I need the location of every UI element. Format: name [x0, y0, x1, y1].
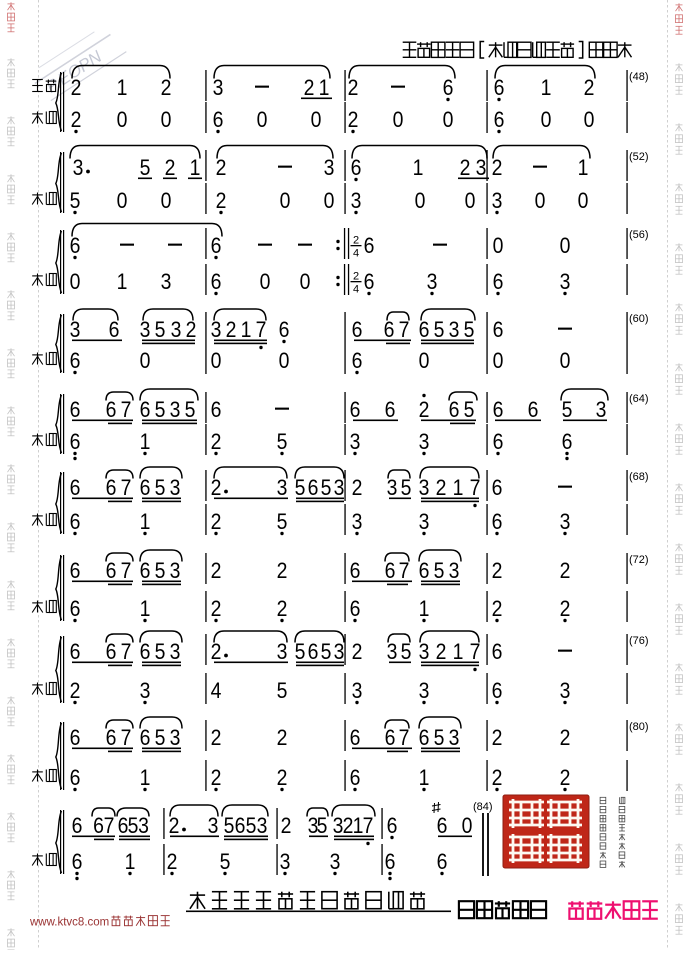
svg-text:3: 3 — [213, 75, 224, 100]
svg-text:0: 0 — [300, 269, 311, 294]
svg-text:2: 2 — [584, 75, 595, 100]
svg-text:6: 6 — [352, 348, 363, 373]
svg-text:3: 3 — [387, 475, 398, 500]
svg-text:6: 6 — [492, 475, 503, 500]
svg-text:5: 5 — [277, 429, 288, 454]
svg-text:1: 1 — [190, 155, 201, 180]
svg-text:3: 3 — [419, 429, 430, 454]
svg-text:6: 6 — [437, 813, 448, 838]
svg-text:3: 3 — [449, 725, 460, 750]
svg-text:(52): (52) — [629, 151, 649, 163]
svg-text:6: 6 — [140, 725, 151, 750]
svg-text:6: 6 — [350, 397, 361, 422]
svg-text:6: 6 — [106, 475, 117, 500]
svg-text:3: 3 — [419, 678, 430, 703]
svg-text:5: 5 — [155, 475, 166, 500]
svg-text:2: 2 — [436, 475, 447, 500]
svg-text:0: 0 — [211, 348, 222, 373]
svg-text:6: 6 — [350, 558, 361, 583]
svg-text:6: 6 — [350, 725, 361, 750]
svg-text:5: 5 — [434, 558, 445, 583]
svg-text:1: 1 — [319, 75, 330, 100]
svg-text:6: 6 — [106, 725, 117, 750]
svg-text:1: 1 — [578, 155, 589, 180]
svg-text:6: 6 — [437, 849, 448, 874]
svg-text:6: 6 — [562, 429, 573, 454]
svg-text:6: 6 — [235, 813, 246, 838]
svg-text:3: 3 — [449, 317, 460, 342]
svg-text:3: 3 — [138, 813, 149, 838]
svg-text:0: 0 — [260, 269, 271, 294]
svg-text:7: 7 — [399, 725, 410, 750]
svg-text:5: 5 — [155, 317, 166, 342]
svg-text:(60): (60) — [629, 313, 649, 325]
svg-text:2: 2 — [211, 475, 222, 500]
svg-text:3: 3 — [419, 475, 430, 500]
svg-text:6: 6 — [140, 475, 151, 500]
svg-text:(80): (80) — [629, 721, 649, 733]
svg-text:6: 6 — [385, 725, 396, 750]
svg-text:6: 6 — [493, 397, 504, 422]
svg-text:6: 6 — [308, 475, 319, 500]
svg-text:6: 6 — [494, 107, 505, 132]
svg-text:1: 1 — [125, 849, 136, 874]
svg-text:2: 2 — [352, 639, 363, 664]
svg-text:2: 2 — [353, 271, 359, 283]
svg-text:5: 5 — [401, 639, 412, 664]
svg-text:2: 2 — [353, 235, 359, 247]
svg-text:1: 1 — [117, 269, 128, 294]
svg-text:3: 3 — [280, 849, 291, 874]
svg-text:3: 3 — [350, 429, 361, 454]
svg-text:3: 3 — [352, 509, 363, 534]
svg-text:6: 6 — [279, 317, 290, 342]
svg-text:2: 2 — [165, 155, 176, 180]
svg-text:3: 3 — [170, 475, 181, 500]
svg-text:0: 0 — [161, 188, 172, 213]
svg-text:0: 0 — [279, 348, 290, 373]
svg-text:7: 7 — [470, 475, 481, 500]
svg-text:0: 0 — [393, 107, 404, 132]
svg-text:7: 7 — [104, 813, 115, 838]
svg-text:5: 5 — [464, 317, 475, 342]
svg-text:2: 2 — [348, 107, 359, 132]
svg-text:(72): (72) — [629, 554, 649, 566]
svg-text:5: 5 — [321, 639, 332, 664]
svg-text:2: 2 — [211, 558, 222, 583]
svg-text:(56): (56) — [629, 229, 649, 241]
svg-text:3: 3 — [277, 639, 288, 664]
svg-text:2: 2 — [281, 813, 292, 838]
svg-text:7: 7 — [121, 725, 132, 750]
svg-text:6: 6 — [492, 509, 503, 534]
svg-text:(48): (48) — [629, 71, 649, 83]
svg-text:2: 2 — [352, 475, 363, 500]
svg-text:3: 3 — [257, 813, 268, 838]
svg-text:5: 5 — [295, 639, 306, 664]
svg-text:0: 0 — [280, 188, 291, 213]
svg-text:3: 3 — [334, 639, 345, 664]
svg-text:3: 3 — [170, 397, 181, 422]
svg-text:3: 3 — [560, 509, 571, 534]
svg-text:6: 6 — [352, 317, 363, 342]
svg-text:6: 6 — [70, 233, 81, 258]
svg-text:3: 3 — [449, 558, 460, 583]
svg-text:3: 3 — [334, 475, 345, 500]
svg-text:1: 1 — [453, 475, 464, 500]
svg-text:3: 3 — [476, 155, 487, 180]
svg-text:2: 2 — [70, 678, 81, 703]
svg-text:5: 5 — [317, 813, 328, 838]
svg-text:7: 7 — [121, 558, 132, 583]
svg-text:2: 2 — [560, 765, 571, 790]
svg-text:0: 0 — [541, 107, 552, 132]
svg-text:5: 5 — [562, 397, 573, 422]
svg-text:5: 5 — [246, 813, 257, 838]
svg-text:6: 6 — [364, 233, 375, 258]
svg-text:(64): (64) — [629, 393, 649, 405]
svg-text:6: 6 — [70, 765, 81, 790]
svg-text:4: 4 — [353, 284, 359, 296]
svg-text:5: 5 — [70, 188, 81, 213]
svg-text:0: 0 — [415, 188, 426, 213]
svg-text:5: 5 — [155, 558, 166, 583]
svg-text:7: 7 — [121, 397, 132, 422]
svg-text:2: 2 — [169, 813, 180, 838]
svg-text:0: 0 — [311, 107, 322, 132]
svg-text:2: 2 — [211, 429, 222, 454]
svg-text:1: 1 — [140, 509, 151, 534]
svg-text:3: 3 — [427, 269, 438, 294]
svg-text:2: 2 — [71, 107, 82, 132]
svg-text:2: 2 — [211, 509, 222, 534]
svg-text:2: 2 — [492, 765, 503, 790]
svg-text:2: 2 — [186, 317, 197, 342]
svg-text:6: 6 — [493, 317, 504, 342]
svg-text:6: 6 — [140, 558, 151, 583]
svg-text:5: 5 — [464, 397, 475, 422]
svg-text:5: 5 — [185, 397, 196, 422]
svg-text:3: 3 — [140, 678, 151, 703]
svg-text:3: 3 — [277, 475, 288, 500]
svg-text:2: 2 — [560, 596, 571, 621]
svg-text:0: 0 — [324, 188, 335, 213]
svg-text:5: 5 — [434, 725, 445, 750]
svg-text:3: 3 — [351, 188, 362, 213]
svg-text:7: 7 — [399, 558, 410, 583]
svg-text:6: 6 — [493, 269, 504, 294]
svg-text:1: 1 — [413, 155, 424, 180]
svg-text:2: 2 — [560, 725, 571, 750]
svg-text:2: 2 — [216, 188, 227, 213]
svg-text:2: 2 — [211, 639, 222, 664]
svg-text:3: 3 — [492, 188, 503, 213]
svg-text:6: 6 — [419, 725, 430, 750]
svg-text:(84): (84) — [473, 801, 493, 813]
svg-text:3: 3 — [171, 317, 182, 342]
svg-text:6: 6 — [528, 397, 539, 422]
svg-text:6: 6 — [385, 849, 396, 874]
svg-text:6: 6 — [350, 596, 361, 621]
svg-text:6: 6 — [70, 725, 81, 750]
svg-text:6: 6 — [493, 429, 504, 454]
svg-text:0: 0 — [70, 269, 81, 294]
svg-text:6: 6 — [419, 558, 430, 583]
svg-text:2: 2 — [348, 75, 359, 100]
svg-text:7: 7 — [121, 475, 132, 500]
svg-text:6: 6 — [384, 317, 395, 342]
svg-text:7: 7 — [363, 813, 374, 838]
svg-text:6: 6 — [364, 269, 375, 294]
svg-text:4: 4 — [211, 678, 222, 703]
svg-text:5: 5 — [128, 813, 139, 838]
svg-text:6: 6 — [140, 397, 151, 422]
svg-text:1: 1 — [419, 596, 430, 621]
svg-text:2: 2 — [460, 155, 471, 180]
svg-text:2: 2 — [277, 765, 288, 790]
svg-text:0: 0 — [117, 107, 128, 132]
svg-text:6: 6 — [385, 558, 396, 583]
svg-text:www.ktvc8.com: www.ktvc8.com — [29, 917, 109, 929]
svg-text:5: 5 — [155, 397, 166, 422]
svg-text:3: 3 — [560, 678, 571, 703]
svg-text:2: 2 — [492, 558, 503, 583]
svg-text:2: 2 — [211, 596, 222, 621]
svg-text:6: 6 — [449, 397, 460, 422]
svg-text:6: 6 — [70, 509, 81, 534]
svg-text:2: 2 — [226, 317, 237, 342]
svg-text:6: 6 — [106, 639, 117, 664]
svg-text:0: 0 — [578, 188, 589, 213]
svg-text:1: 1 — [117, 75, 128, 100]
svg-text:5: 5 — [220, 849, 231, 874]
svg-text:3: 3 — [170, 558, 181, 583]
svg-text:2: 2 — [277, 596, 288, 621]
svg-text:6: 6 — [419, 317, 430, 342]
svg-text:5: 5 — [277, 509, 288, 534]
svg-text:3: 3 — [170, 639, 181, 664]
svg-text:2: 2 — [161, 75, 172, 100]
svg-text:3: 3 — [352, 678, 363, 703]
svg-text:0: 0 — [560, 233, 571, 258]
svg-text:2: 2 — [277, 725, 288, 750]
svg-text:0: 0 — [493, 348, 504, 373]
svg-text:6: 6 — [70, 596, 81, 621]
svg-text:6: 6 — [211, 397, 222, 422]
svg-text:1: 1 — [541, 75, 552, 100]
svg-text:7: 7 — [470, 639, 481, 664]
svg-text:3: 3 — [560, 269, 571, 294]
svg-text:1: 1 — [140, 765, 151, 790]
svg-text:3: 3 — [208, 813, 219, 838]
svg-text:1: 1 — [140, 429, 151, 454]
svg-text:7: 7 — [121, 639, 132, 664]
svg-text:3: 3 — [387, 639, 398, 664]
svg-text:4: 4 — [353, 248, 359, 260]
svg-text:6: 6 — [385, 397, 396, 422]
svg-text:3: 3 — [419, 639, 430, 664]
svg-text:5: 5 — [321, 475, 332, 500]
svg-text:5: 5 — [277, 678, 288, 703]
svg-text:0: 0 — [117, 188, 128, 213]
svg-text:3: 3 — [419, 509, 430, 534]
svg-text:6: 6 — [70, 475, 81, 500]
svg-text:3: 3 — [596, 397, 607, 422]
svg-text:3: 3 — [140, 317, 151, 342]
svg-text:6: 6 — [308, 639, 319, 664]
svg-text:1: 1 — [140, 596, 151, 621]
svg-text:6: 6 — [106, 397, 117, 422]
svg-text:2: 2 — [436, 639, 447, 664]
svg-text:3: 3 — [161, 269, 172, 294]
svg-text:3: 3 — [324, 155, 335, 180]
svg-text:2: 2 — [492, 155, 503, 180]
svg-text:5: 5 — [295, 475, 306, 500]
svg-text:3: 3 — [70, 317, 81, 342]
svg-text:2: 2 — [211, 725, 222, 750]
svg-text:3: 3 — [73, 155, 84, 180]
svg-text:7: 7 — [399, 317, 410, 342]
svg-text:0: 0 — [465, 188, 476, 213]
svg-text:6: 6 — [70, 348, 81, 373]
svg-text:5: 5 — [434, 317, 445, 342]
svg-text:2: 2 — [216, 155, 227, 180]
svg-text:0: 0 — [462, 813, 473, 838]
svg-text:6: 6 — [72, 813, 83, 838]
svg-text:6: 6 — [93, 813, 104, 838]
svg-text:0: 0 — [140, 348, 151, 373]
svg-text:6: 6 — [443, 75, 454, 100]
svg-text:6: 6 — [109, 317, 120, 342]
svg-text:1: 1 — [453, 639, 464, 664]
svg-text:3: 3 — [330, 849, 341, 874]
svg-text:6: 6 — [494, 75, 505, 100]
svg-text:3: 3 — [211, 317, 222, 342]
svg-text:2: 2 — [492, 725, 503, 750]
svg-text:6: 6 — [106, 558, 117, 583]
svg-text:1: 1 — [419, 765, 430, 790]
svg-text:5: 5 — [401, 475, 412, 500]
svg-text:6: 6 — [492, 678, 503, 703]
svg-text:(76): (76) — [629, 635, 649, 647]
svg-text:(68): (68) — [629, 471, 649, 483]
svg-text:2: 2 — [492, 596, 503, 621]
svg-text:1: 1 — [241, 317, 252, 342]
svg-text:2: 2 — [419, 397, 430, 422]
svg-text:0: 0 — [560, 348, 571, 373]
svg-text:6: 6 — [70, 397, 81, 422]
svg-text:0: 0 — [535, 188, 546, 213]
svg-text:5: 5 — [155, 639, 166, 664]
svg-text:6: 6 — [70, 558, 81, 583]
svg-text:6: 6 — [351, 155, 362, 180]
svg-text:5: 5 — [140, 155, 151, 180]
svg-text:2: 2 — [167, 849, 178, 874]
svg-text:2: 2 — [211, 765, 222, 790]
svg-text:0: 0 — [443, 107, 454, 132]
svg-text:3: 3 — [170, 725, 181, 750]
svg-text:6: 6 — [213, 107, 224, 132]
svg-text:0: 0 — [419, 348, 430, 373]
svg-text:6: 6 — [492, 639, 503, 664]
svg-text:6: 6 — [387, 813, 398, 838]
svg-text:2: 2 — [304, 75, 315, 100]
svg-text:6: 6 — [211, 269, 222, 294]
svg-text:6: 6 — [70, 429, 81, 454]
svg-text:0: 0 — [161, 107, 172, 132]
svg-text:6: 6 — [140, 639, 151, 664]
svg-text:5: 5 — [155, 725, 166, 750]
svg-text:6: 6 — [211, 233, 222, 258]
svg-text:0: 0 — [257, 107, 268, 132]
svg-text:2: 2 — [71, 75, 82, 100]
svg-text:2: 2 — [277, 558, 288, 583]
svg-text:6: 6 — [72, 849, 83, 874]
svg-text:2: 2 — [560, 558, 571, 583]
svg-text:6: 6 — [70, 639, 81, 664]
svg-text:6: 6 — [350, 765, 361, 790]
svg-text:0: 0 — [584, 107, 595, 132]
svg-text:0: 0 — [493, 233, 504, 258]
svg-text:7: 7 — [256, 317, 267, 342]
svg-text:5: 5 — [224, 813, 235, 838]
